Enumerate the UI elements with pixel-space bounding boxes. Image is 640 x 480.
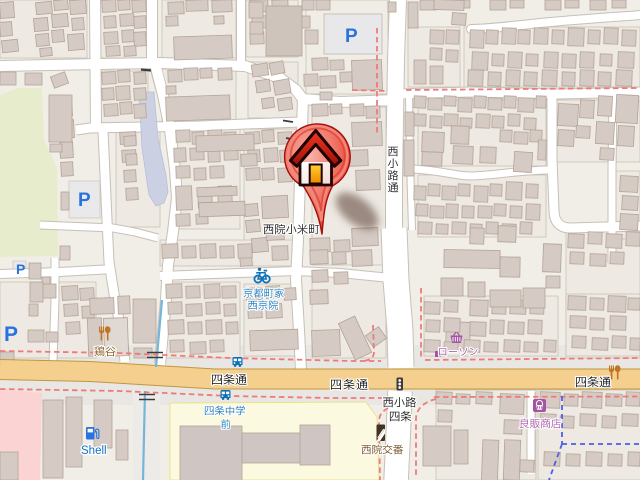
svg-text:Shell: Shell [81, 445, 107, 457]
svg-text:P: P [78, 190, 91, 211]
svg-text:P: P [345, 26, 358, 47]
svg-text:P: P [16, 261, 25, 277]
svg-text:P: P [4, 323, 18, 346]
